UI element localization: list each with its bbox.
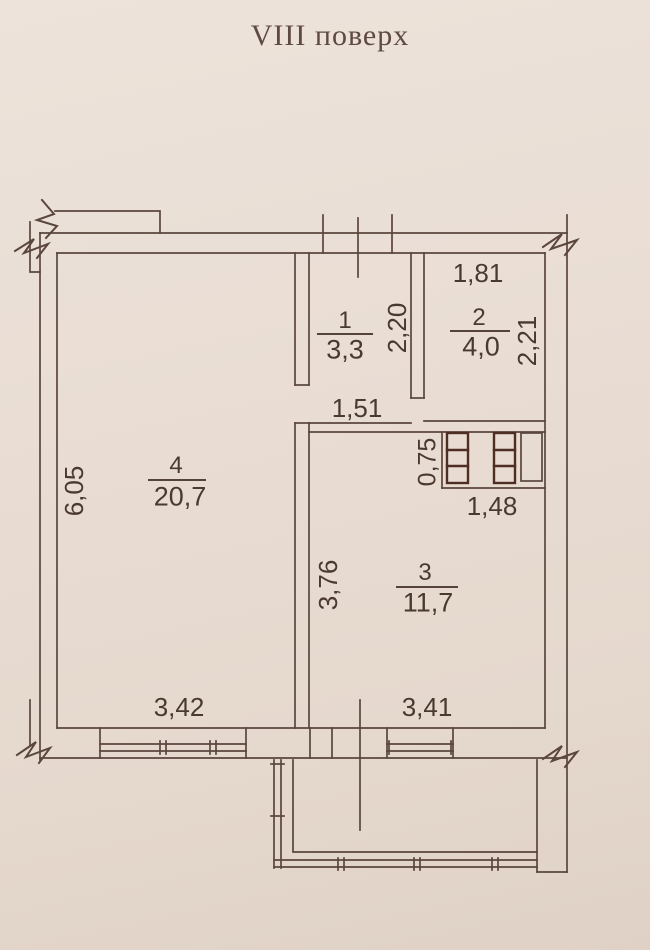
vent-shaft-width-dim: 1,48: [467, 493, 518, 519]
room-2-area: 4,0: [462, 334, 500, 361]
room-3-width-dim: 3,41: [402, 694, 453, 720]
room-4-width-dim: 3,42: [154, 694, 205, 720]
room-3-number: 3: [418, 561, 431, 585]
room-3-area: 11,7: [403, 590, 454, 617]
room-1-area: 3,3: [326, 337, 364, 364]
floor-plan-drawing: [0, 0, 650, 950]
room-2-height-dim: 2,21: [514, 316, 540, 367]
outer-walls: [30, 211, 567, 872]
balcony: [271, 760, 567, 872]
window-room4: [100, 728, 246, 758]
room-2-width-dim: 1,81: [453, 260, 504, 286]
window-room3: [387, 728, 453, 758]
room-3-height-dim: 3,76: [315, 560, 341, 611]
room-4-number: 4: [169, 454, 182, 478]
entrance-door: [323, 215, 392, 277]
floor-plan-page: VIII поверх: [0, 0, 650, 950]
vent-shaft-icon: [447, 433, 515, 483]
vent-shaft-height-dim: 0,75: [416, 438, 441, 487]
balcony-door: [310, 700, 360, 830]
room-4-height-dim: 6,05: [61, 466, 87, 517]
room-1-number: 1: [338, 309, 351, 333]
room-2-number: 2: [472, 306, 485, 330]
room-1-height-dim: 2,20: [384, 303, 410, 354]
room-4-area: 20,7: [154, 484, 207, 511]
vent-niche-box: [521, 433, 542, 481]
room-1-width-dim: 1,51: [332, 395, 383, 421]
